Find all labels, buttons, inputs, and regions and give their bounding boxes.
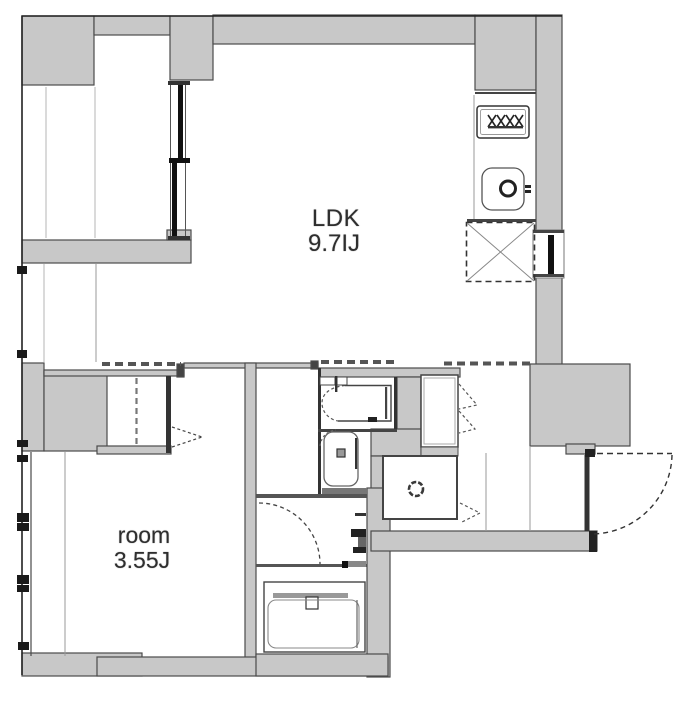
svg-text:9.7IJ: 9.7IJ: [308, 230, 360, 257]
svg-text:room: room: [118, 522, 170, 548]
svg-text:3.55J: 3.55J: [114, 547, 170, 573]
svg-text:LDK: LDK: [312, 205, 360, 232]
